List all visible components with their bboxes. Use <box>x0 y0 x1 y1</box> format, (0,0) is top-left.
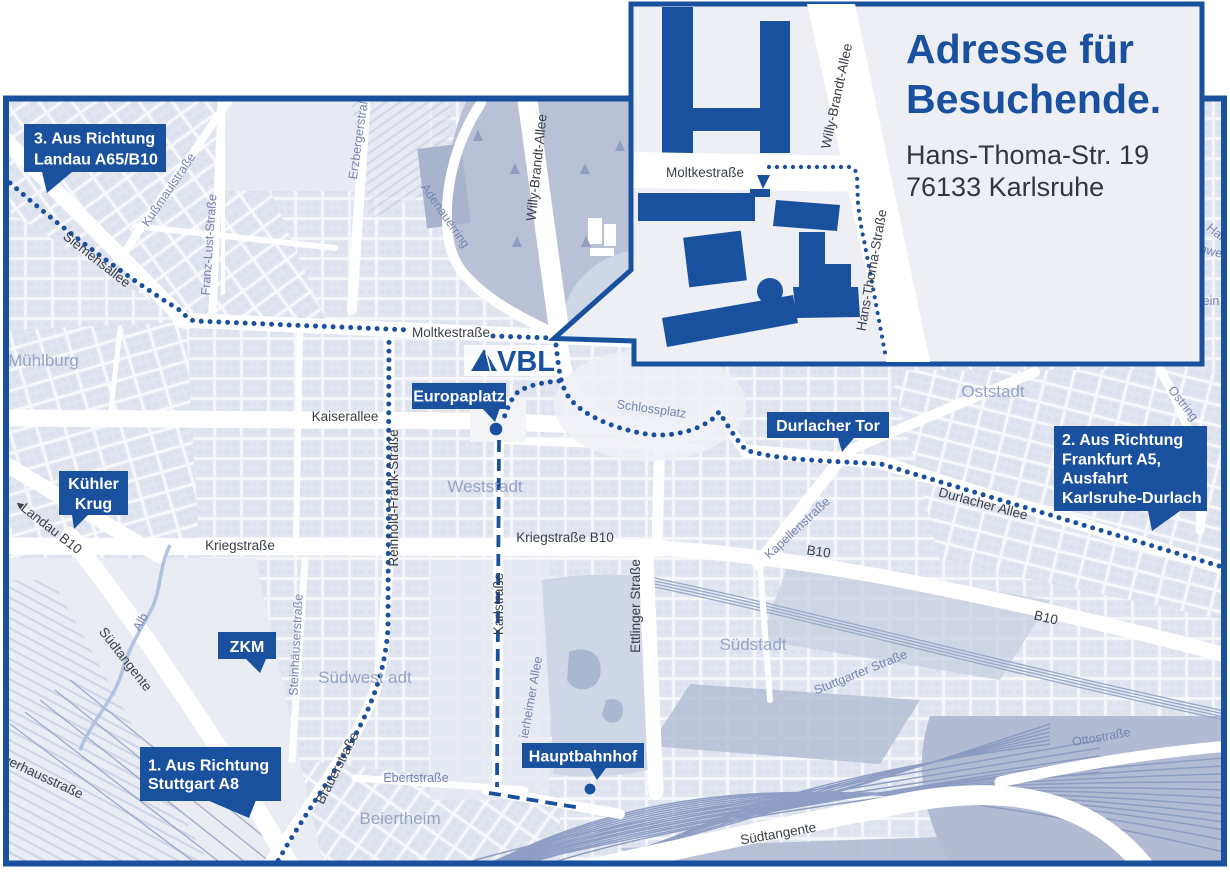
svg-text:Karlsruhe-Durlach: Karlsruhe-Durlach <box>1062 490 1202 507</box>
svg-text:Ettlinger Straße: Ettlinger Straße <box>628 559 643 653</box>
svg-text:Oststadt: Oststadt <box>961 382 1025 401</box>
svg-text:ein: ein <box>1203 294 1220 308</box>
svg-text:Karlstraße: Karlstraße <box>491 573 506 635</box>
svg-text:Ausfahrt: Ausfahrt <box>1062 471 1128 488</box>
svg-text:Adresse für: Adresse für <box>906 26 1134 72</box>
svg-text:76133 Karlsruhe: 76133 Karlsruhe <box>906 172 1104 202</box>
svg-text:Besuchende.: Besuchende. <box>906 76 1161 122</box>
svg-text:Landau A65/B10: Landau A65/B10 <box>34 151 158 168</box>
svg-text:Moltkestraße: Moltkestraße <box>412 325 490 340</box>
svg-text:Frankfurt A5,: Frankfurt A5, <box>1062 451 1161 468</box>
svg-text:ZKM: ZKM <box>230 639 265 656</box>
svg-text:Weststadt: Weststadt <box>447 477 523 496</box>
svg-text:3. Aus Richtung: 3. Aus Richtung <box>34 130 155 147</box>
svg-text:Kühler: Kühler <box>68 476 119 493</box>
svg-text:Reinhold-Frank-Straße: Reinhold-Frank-Straße <box>386 429 401 566</box>
svg-text:Europaplatz: Europaplatz <box>413 388 505 405</box>
svg-text:Südstadt: Südstadt <box>719 635 786 654</box>
svg-text:Hans-Thoma-Str. 19: Hans-Thoma-Str. 19 <box>906 140 1149 170</box>
svg-text:Mühlburg: Mühlburg <box>8 351 79 370</box>
svg-text:Ebertstraße: Ebertstraße <box>383 771 448 785</box>
svg-text:1. Aus Richtung: 1. Aus Richtung <box>148 758 269 775</box>
svg-text:Kaiserallee: Kaiserallee <box>312 409 379 424</box>
svg-text:Kriegstraße: Kriegstraße <box>205 538 275 553</box>
svg-text:Stuttgart A8: Stuttgart A8 <box>148 776 239 793</box>
svg-text:VBL: VBL <box>497 346 555 378</box>
svg-text:Kriegstraße B10: Kriegstraße B10 <box>516 530 614 545</box>
svg-text:Beiertheim: Beiertheim <box>359 809 440 828</box>
svg-text:2. Aus Richtung: 2. Aus Richtung <box>1062 432 1183 449</box>
svg-text:Moltkestraße: Moltkestraße <box>666 165 744 180</box>
svg-text:Südwest adt: Südwest adt <box>318 668 412 687</box>
svg-text:Durlacher Tor: Durlacher Tor <box>776 418 880 435</box>
svg-text:Krug: Krug <box>75 496 112 513</box>
svg-text:Hauptbahnhof: Hauptbahnhof <box>529 748 638 765</box>
